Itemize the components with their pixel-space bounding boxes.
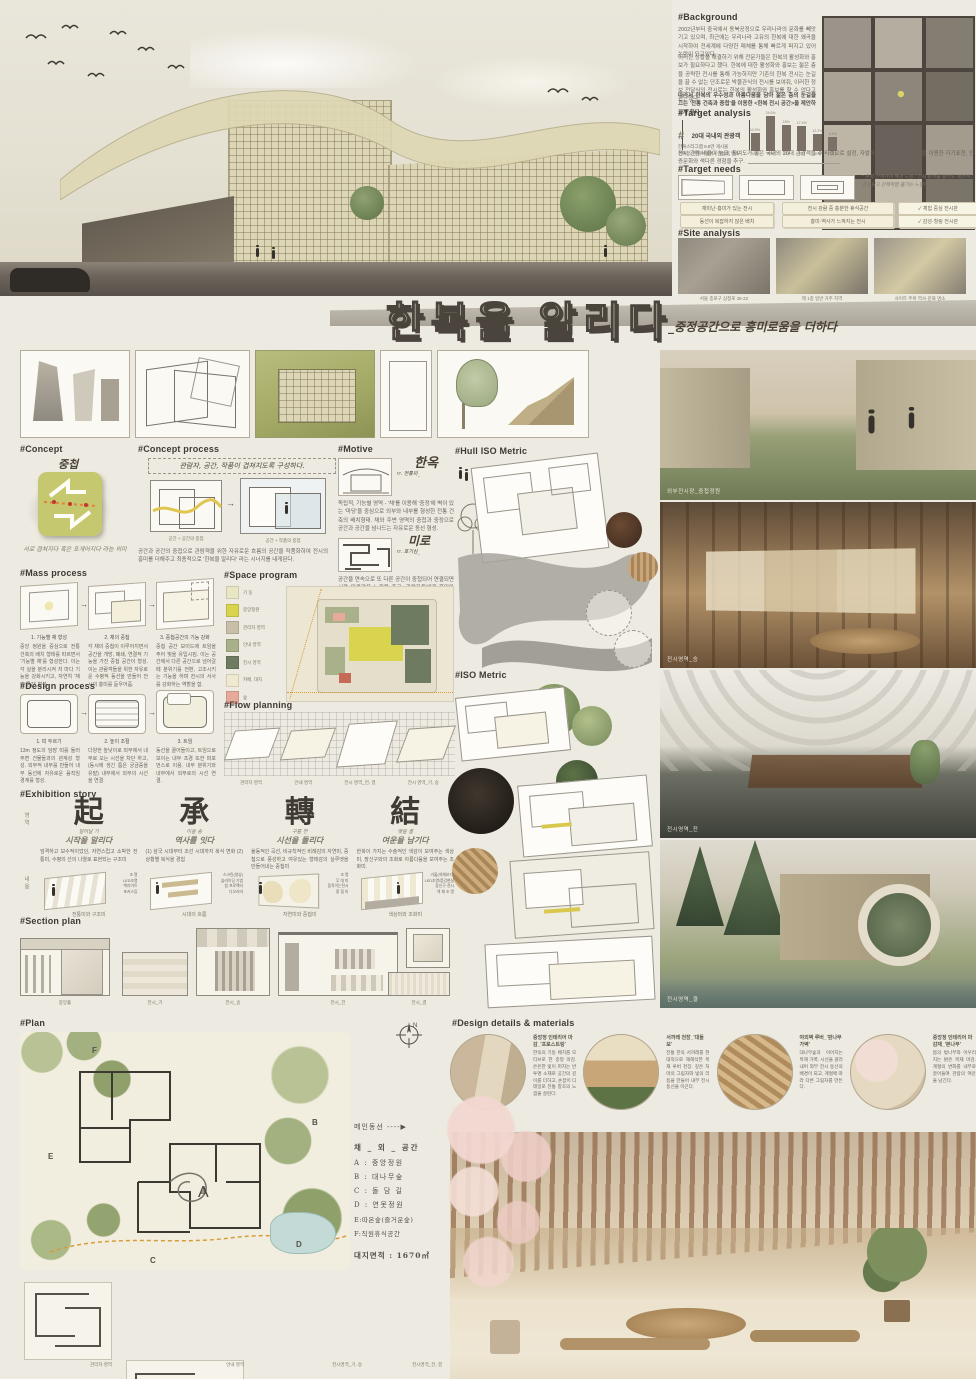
story-tagline: 시선을 돌리다 bbox=[251, 835, 349, 846]
foliage-circle bbox=[572, 706, 612, 746]
hanja-reading: 이을 승 bbox=[146, 828, 244, 835]
detail-caption-3: 야외벽 루버_'판나무 가벽' bbox=[800, 1034, 843, 1048]
section-caption-2: 전시_기 bbox=[122, 1000, 188, 1006]
plan-letter-e: E bbox=[48, 1152, 53, 1161]
small-plan-caption-3: 전시영역_기, 승 bbox=[258, 1362, 362, 1368]
design-step-sketch-1 bbox=[20, 694, 78, 734]
stair-sketch bbox=[508, 377, 574, 425]
round-table bbox=[626, 1308, 746, 1340]
concept-sketch-1 bbox=[20, 350, 130, 438]
mass-step-sketch-1 bbox=[20, 582, 78, 630]
site-analysis-heading: #Site analysis bbox=[678, 228, 740, 238]
detail-text-3: 대나무숲과 이어지는 목재 가벽. 시선을 걸러내며 외부 전시 동선의 배경이… bbox=[800, 1050, 843, 1091]
bench bbox=[750, 1330, 860, 1342]
design-step-title-3: 3. 트임 bbox=[156, 738, 214, 745]
detail-text-4: 봄의 벚나무와 어우러지는 밝은 목재 마감. 계절의 변화를 내부로 끌어들여… bbox=[933, 1050, 976, 1084]
arrow-icon: → bbox=[80, 600, 88, 609]
flow-caption-3: 전시 영역_전, 결 bbox=[344, 780, 375, 786]
detail-caption-1: 중앙정 인테리어 마감_'프로스트링' bbox=[533, 1034, 576, 1048]
tree-sketch bbox=[456, 359, 498, 407]
motive-tag-2: ㅁ. 호기심_ bbox=[396, 548, 420, 555]
motive-hand-hanok: 한옥 bbox=[414, 452, 438, 471]
visitor-quote: “ 혼자 산책하며 배경 느낌 / 전시 순서를 몰라도 재밌게 / 힐링되고 … bbox=[862, 174, 974, 189]
concept-sketch-4 bbox=[437, 350, 589, 438]
hero-rendering bbox=[0, 0, 672, 296]
poster-title: 한복을 알리다 bbox=[386, 288, 673, 348]
section-plan-heading: #Section plan bbox=[20, 916, 81, 926]
legend-row: 전시 영역 bbox=[226, 656, 282, 669]
poster-board: #Background 2002년부터 중국에서 동북공정으로 우리나라의 문화… bbox=[0, 0, 976, 1379]
legend-row: 안내 영역 bbox=[226, 639, 282, 652]
story-caption: 시대의 흐름 bbox=[146, 911, 244, 918]
flow-plan bbox=[396, 725, 456, 762]
site-photo-3 bbox=[874, 238, 966, 294]
need-pill-4: 흥미·역사가 느껴지는 전시 bbox=[782, 215, 894, 228]
section-drawing-6 bbox=[388, 972, 450, 996]
section-drawing-5 bbox=[406, 928, 450, 968]
detail-text-2: 전통 한옥 서까래를 현대적으로 재해석한 목재 루버 천장. 깊은 처마의 그… bbox=[666, 1050, 709, 1091]
story-side-notes: 거울(색채보기) LED조명/증강현실 장신구·전시 색 채 조 명 bbox=[425, 873, 454, 896]
legend-row: 관리자 영역 bbox=[226, 621, 282, 634]
bench bbox=[560, 1338, 710, 1350]
background-heading: #Background bbox=[678, 12, 738, 22]
detail-circle-dashed bbox=[614, 630, 652, 668]
mass-step-sketch-2 bbox=[88, 582, 146, 630]
collage-tile bbox=[875, 18, 922, 68]
site-caption-1: 서울 종로구 삼청로 35-22 bbox=[678, 296, 770, 302]
detail-circle-frosting bbox=[450, 1034, 526, 1110]
design-step-title-2: 2. 높이 조절 bbox=[88, 738, 146, 745]
motive-text-1: 독립적, 기능별 영역 - '채'를 이용해 '중정'에 벽이 있는 '마당'을… bbox=[338, 500, 454, 533]
moon-gate bbox=[858, 884, 940, 966]
compass-icon: N bbox=[394, 1020, 424, 1050]
story-text: 한복이 가지는 수술적인 색감이 보여주는 색상미, 장신구와의 조화로 아름다… bbox=[357, 849, 455, 873]
concept-caption: 서로 겹쳐지다 혹은 포개어지다 라는 의미 bbox=[16, 544, 134, 553]
site-caption-2: 제 1종 일반 거주 지역 bbox=[776, 296, 868, 302]
concept-sketch-3 bbox=[380, 350, 432, 438]
hanja-reading: 구를 전 bbox=[251, 828, 349, 835]
poster-subtitle: _중정공간으로 흥미로움을 더하다 bbox=[668, 318, 837, 335]
section-caption-1: 중앙홀 bbox=[20, 1000, 110, 1006]
flow-plan bbox=[336, 720, 398, 767]
section-drawing-4 bbox=[278, 932, 398, 996]
collage-tile bbox=[926, 18, 973, 68]
motive-heading: #Motive bbox=[338, 444, 373, 454]
tree bbox=[350, 186, 384, 220]
hanja-reading: 일어날 기 bbox=[40, 828, 138, 835]
need-pill-2: 전시 관람 중 충분한 휴식공간 bbox=[782, 202, 894, 215]
row-label-area: 영역 bbox=[22, 812, 30, 827]
material-circle-wood bbox=[628, 552, 658, 582]
render-photo-drapery: 전시영역_전 bbox=[660, 670, 976, 838]
bar-30대: 18%30대 bbox=[779, 101, 793, 157]
collage-tile bbox=[926, 72, 973, 122]
material-circle-dark bbox=[606, 512, 642, 548]
flow-planning-heading: #Flow planning bbox=[224, 700, 292, 710]
story-column-gi: 起 일어날 기 시작을 알리다 엄격하고 보수적이었던, 자연스럽고 소박한 전… bbox=[40, 798, 138, 918]
mass-step-title-2: 2. 채의 중첩 bbox=[88, 634, 146, 641]
concept-model-photo bbox=[255, 350, 375, 438]
overlap-axon-1 bbox=[150, 480, 222, 532]
material-circle-night bbox=[448, 768, 514, 834]
flow-captions: 관리자 영역 안내 영역 전시 영역_전, 결 전시 영역_기, 승 bbox=[224, 780, 455, 786]
flow-caption-4: 전시 영역_기, 승 bbox=[408, 780, 439, 786]
details-row: 중앙정 인테리어 마감_'프로스트링' 한옥의 기둥 배치를 모티브로 한 중정… bbox=[450, 1034, 976, 1128]
hanok-sketch bbox=[338, 458, 392, 496]
concept-hand-word: 중첩 bbox=[58, 456, 78, 472]
story-text: 엄격하고 보수적이었던, 자연스럽고 소박한 전통미, 수평의 선의 나열로 표… bbox=[40, 849, 138, 873]
story-side-notes: 조 명 무 대 미 움직이는전시 중 첩 미 bbox=[328, 873, 349, 896]
bar-10대: 12.9%10대 bbox=[748, 101, 762, 157]
design-details-heading: #Design details & materials bbox=[452, 1018, 574, 1028]
photo-caption: 전시영역_전 bbox=[667, 825, 698, 833]
concept-diagram bbox=[38, 472, 102, 536]
detail-caption-4: 중앙정 인테리어 마감재_'본나무' bbox=[933, 1034, 976, 1048]
flow-plan bbox=[280, 728, 336, 761]
person-figure bbox=[465, 472, 468, 481]
iso-plan-level-1 bbox=[455, 686, 571, 761]
concept-sketch-2 bbox=[135, 350, 250, 438]
flow-caption-1: 관리자 영역 bbox=[240, 780, 262, 786]
iso-plan-level-2 bbox=[517, 774, 653, 857]
render-photo-courtyard: 외부전시장_중첩정원 bbox=[660, 350, 976, 500]
mass-step-text-3: 중첩 공간 보이드에 트임을 주어 빛을 유입시킴. 이는 공간에서 다른 공간… bbox=[156, 644, 216, 689]
section-caption-3: 전시_승 bbox=[196, 1000, 270, 1006]
flow-planning-grid bbox=[224, 712, 455, 776]
story-caption: 색상미와 조화미 bbox=[357, 911, 455, 918]
design-step-text-3: 동선을 끌어들이고, 트임으로 보이는 내부 조경 또한 퍼포먼스로 이용. 내… bbox=[156, 748, 216, 786]
car-silhouette bbox=[10, 268, 90, 292]
concept-process-heading: #Concept process bbox=[138, 444, 219, 454]
detail-caption-2: 서까래 천장_'대들보' bbox=[666, 1034, 709, 1048]
mass-step-text-2: 각 채의 중첩이 이루어지면서 공간을 개방, 폐쇄, 연결적 기능을 가진 중… bbox=[88, 644, 148, 689]
design-step-title-1: 1. 띠 두르기 bbox=[20, 738, 78, 745]
exhibit-sketch-2 bbox=[739, 175, 794, 200]
concept-heading: #Concept bbox=[20, 444, 63, 454]
story-column-jeon: 轉 구를 전 시선을 돌리다 율동적인 곡선, 비규칙적인 비례감의 자연미, … bbox=[251, 798, 349, 918]
legend-row: 중앙정원 bbox=[226, 604, 282, 617]
site-photo-1 bbox=[678, 238, 770, 294]
design-step-sketch-2 bbox=[88, 694, 146, 734]
concept-process-hand: 관람자, 공간, 작품이 겹쳐지도록 구성하다. bbox=[148, 458, 336, 474]
small-plan-caption-4: 전시영역_전, 결 bbox=[376, 1362, 442, 1368]
plan-letter-d: D bbox=[296, 1240, 302, 1249]
legend-row: 카페, 대지 bbox=[226, 674, 282, 687]
story-side-notes: 스크린(영상) 슬라이딩 기법 빔 프로젝터 디오라마 bbox=[221, 873, 243, 896]
collage-tile bbox=[824, 18, 871, 68]
flow-plan bbox=[224, 728, 280, 761]
arrow-icon: → bbox=[148, 708, 156, 717]
mass-step-sketch-3 bbox=[156, 578, 214, 630]
section-drawing-2 bbox=[122, 952, 188, 996]
arrow-icon: → bbox=[148, 600, 156, 609]
small-plan-caption-2: 안내 영역 bbox=[126, 1362, 244, 1368]
design-process-heading: #Design process bbox=[20, 681, 95, 691]
section-drawing-3 bbox=[196, 928, 270, 996]
section-caption-5: 전시_결 bbox=[388, 1000, 450, 1006]
section-drawing-1 bbox=[20, 938, 110, 996]
mass-process-heading: #Mass process bbox=[20, 568, 87, 578]
collage-tile bbox=[875, 72, 922, 122]
arrow-icon: → bbox=[226, 498, 235, 508]
person-figure bbox=[459, 470, 462, 479]
overlap-axon-2 bbox=[240, 478, 326, 534]
legend-row: 기 둥 bbox=[226, 586, 282, 599]
hanja-reading: 맺을 결 bbox=[357, 828, 455, 835]
detail-text-1: 한옥의 기둥 배치를 모티브로 한 중정 마감. 은은한 빛이 퍼지는 반투명 … bbox=[533, 1050, 576, 1098]
flow-caption-2: 안내 영역 bbox=[294, 780, 312, 786]
hanja-gyeol: 結 bbox=[390, 795, 420, 830]
plan-heading: #Plan bbox=[20, 1018, 45, 1028]
photo-caption: 외부전시장_중첩정원 bbox=[667, 487, 721, 495]
small-plan-caption-1: 관리자 영역 bbox=[24, 1362, 112, 1368]
story-tagline: 여운을 남기다 bbox=[357, 835, 455, 846]
maze-sketch bbox=[338, 538, 392, 572]
mass-step-title-3: 3. 중첩공간의 기능 강화 bbox=[156, 634, 214, 641]
row-label-content: 내용 bbox=[22, 876, 30, 891]
bar-20대: 24.6%20대 bbox=[764, 101, 778, 157]
render-photo-wood-interior: 전시영역_승 bbox=[660, 502, 976, 668]
hanja-jeon: 轉 bbox=[285, 795, 315, 830]
overlap-caption-2: 공간 + 작품의 중첩 bbox=[240, 538, 326, 544]
site-plan: A bbox=[20, 1032, 350, 1270]
detail-circle-rafter bbox=[583, 1034, 659, 1110]
need-pill-3: 동선이 복잡하지 않은 배치 bbox=[680, 215, 774, 228]
exhibit-sketch-3 bbox=[800, 175, 855, 200]
plan-letter-a: A bbox=[200, 1186, 206, 1195]
exhibit-sketch-1 bbox=[678, 175, 733, 200]
concept-process-paragraph: 공간과 공간의 중첩으로 관람객을 위한 자유로운 흐름의 공간을 작품화하여 … bbox=[138, 548, 328, 565]
need-check-2: ✓ 감성·힐링 전시관 bbox=[898, 215, 976, 228]
hashtag-icon: # bbox=[678, 130, 684, 142]
render-photo-moongate: 전시영역_결 bbox=[660, 840, 976, 1008]
curved-roof bbox=[60, 60, 660, 200]
space-program-map bbox=[286, 586, 454, 702]
iso-plan-level-3 bbox=[509, 851, 654, 939]
story-tagline: 시작을 알리다 bbox=[40, 835, 138, 846]
story-tagline: 역사를 잇다 bbox=[146, 835, 244, 846]
plan-letter-b: B bbox=[312, 1118, 318, 1127]
detail-circle-blossom bbox=[850, 1034, 926, 1110]
person-figure bbox=[256, 248, 259, 257]
design-step-sketch-3 bbox=[156, 690, 214, 734]
site-photo-2 bbox=[776, 238, 868, 294]
bar-60대: 9.6%60대 bbox=[826, 101, 840, 157]
iso-metric-heading: #ISO Metric bbox=[455, 670, 507, 680]
design-step-text-1: 13m 정도의 담장 띠를 둘러 주변 건물들과의 관계성 형성. 외부적 내부… bbox=[20, 748, 80, 786]
need-check-1: ✓ 체험 중심 전시관 bbox=[898, 202, 976, 215]
detail-circle-louver bbox=[717, 1034, 793, 1110]
story-text: (1) 삼국 시대부터 조선 시대까지 복식 변화 (2) 상황별 복식을 경험 bbox=[146, 849, 244, 873]
space-program-heading: #Space program bbox=[224, 570, 297, 580]
hanja-gi: 起 bbox=[74, 795, 104, 830]
photo-caption: 전시영역_승 bbox=[667, 655, 698, 663]
need-pill-1: 재미난·흥미가 있는 전시 bbox=[680, 202, 774, 215]
arrow-icon: → bbox=[80, 708, 88, 717]
photo-caption: 전시영역_결 bbox=[667, 995, 698, 1003]
plan-letter-c: C bbox=[150, 1256, 156, 1265]
motive-hand-maze: 미로 bbox=[408, 532, 430, 549]
story-column-gyeol: 結 맺을 결 여운을 남기다 한복이 가지는 수술적인 색감이 보여주는 색상미… bbox=[357, 798, 455, 918]
mass-step-title-1: 1. 기능별 채 형성 bbox=[20, 634, 78, 641]
exhibition-columns: 起 일어날 기 시작을 알리다 엄격하고 보수적이었던, 자연스럽고 소박한 전… bbox=[40, 798, 454, 918]
hanja-seung: 承 bbox=[179, 795, 209, 830]
story-side-notes: 조 명 LED조명 백라이트 포커스등 bbox=[123, 873, 137, 896]
tree bbox=[606, 206, 646, 246]
small-plan-1 bbox=[24, 1282, 112, 1360]
plan-letter-f: F bbox=[92, 1046, 97, 1055]
target-needs-heading: #Target needs bbox=[678, 164, 741, 174]
bar-40대: 17.4%40대 bbox=[795, 101, 809, 157]
space-program-legend: 기 둥중앙정원관리자 영역안내 영역전시 영역카페, 대지숲 bbox=[226, 586, 282, 709]
story-text: 율동적인 곡선, 비규칙적인 비례감의 자연미, 중첩으로 풍성하고 여유있는 … bbox=[251, 849, 349, 873]
hull-iso-heading: #Hull ISO Metric bbox=[455, 446, 527, 456]
bar-50대: 12.2%50대 bbox=[810, 101, 824, 157]
svg-text:N: N bbox=[413, 1023, 417, 1029]
story-caption: 자연미와 중첩미 bbox=[251, 911, 349, 918]
section-caption-4: 전시_전 bbox=[278, 1000, 398, 1006]
planter-tree bbox=[862, 1228, 932, 1308]
story-column-seung: 承 이을 승 역사를 잇다 (1) 삼국 시대부터 조선 시대까지 복식 변화 … bbox=[146, 798, 244, 918]
final-render bbox=[450, 1132, 976, 1379]
iso-plan-ground bbox=[484, 936, 655, 1009]
person-figure bbox=[604, 248, 607, 257]
detail-circle-dashed bbox=[586, 590, 632, 636]
overlap-caption-1: 공간 + 공간의 중첩 bbox=[150, 536, 222, 542]
person-figure bbox=[272, 250, 275, 259]
design-step-text-2: 다양한 높낮이로 외부에서 내부로 오는 시선을 차단 하고, (동시에 생긴 … bbox=[88, 748, 148, 786]
material-circle-slats bbox=[452, 848, 498, 894]
motive-tag-1: ㅁ. 전통미_ bbox=[396, 470, 420, 477]
target-analysis-heading: #Target analysis bbox=[678, 108, 751, 118]
